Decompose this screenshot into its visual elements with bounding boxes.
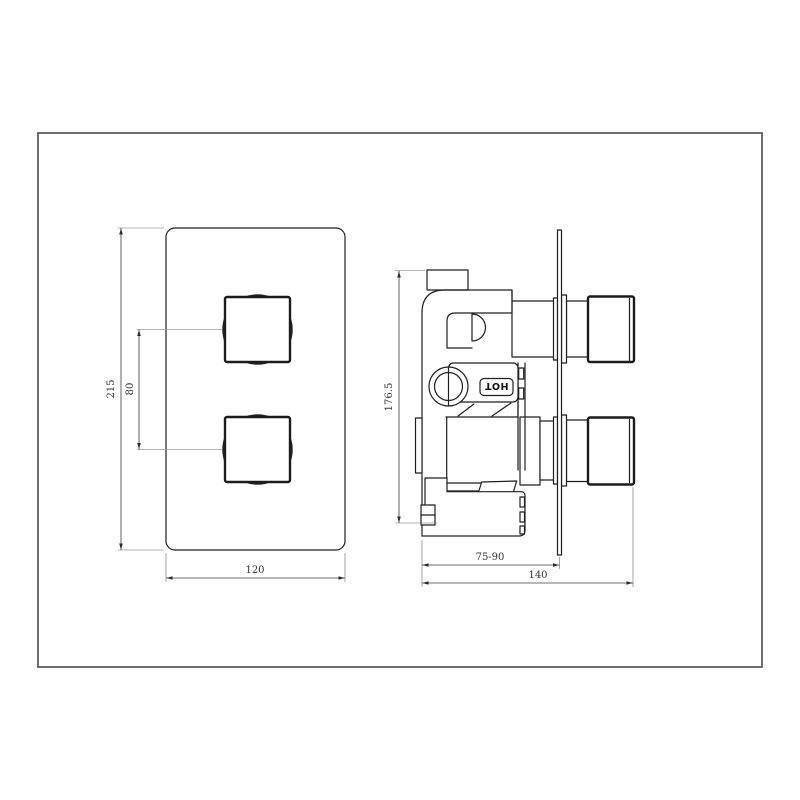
bottom-flange-front (562, 415, 567, 486)
sheet-border (38, 133, 762, 667)
lower-assembly (421, 478, 525, 536)
side-top-handle (588, 297, 634, 363)
dim-front-width-text: 120 (245, 565, 264, 576)
dim-front-height-text: 215 (106, 379, 117, 398)
dim-total-depth-text: 140 (528, 570, 547, 581)
dim-handle-spacing: 80 (125, 330, 141, 450)
front-view: 215 80 120 (106, 228, 345, 582)
cartridge-dome (472, 314, 486, 341)
technical-drawing-svg: 215 80 120 (0, 0, 800, 800)
dim-depth-range-text: 75-90 (476, 552, 505, 563)
dim-handle-spacing-text: 80 (125, 383, 136, 396)
bottom-cartridge-block (520, 417, 540, 485)
drawing-canvas: 215 80 120 (0, 0, 800, 800)
dim-side-height-text: 176.5 (384, 383, 395, 412)
bottom-handle-stem (567, 420, 589, 482)
bottom-cartridge-neck (540, 421, 554, 480)
cartridge-housing: HOT (429, 363, 518, 406)
top-supply-pipe (427, 270, 468, 290)
front-bottom-handle (222, 414, 293, 485)
wall-plate-profile (558, 230, 562, 555)
side-view: HOT (384, 230, 634, 587)
hot-text: HOT (484, 380, 508, 391)
dim-front-width: 120 (166, 553, 345, 582)
top-cartridge-neck (512, 301, 554, 357)
body-left-boss (416, 418, 423, 473)
front-plate (166, 228, 345, 550)
front-top-handle (222, 294, 293, 365)
top-handle-stem (567, 301, 589, 357)
hot-port-label: HOT (480, 379, 513, 396)
top-flange-front (562, 295, 567, 363)
side-bottom-handle (588, 418, 634, 485)
